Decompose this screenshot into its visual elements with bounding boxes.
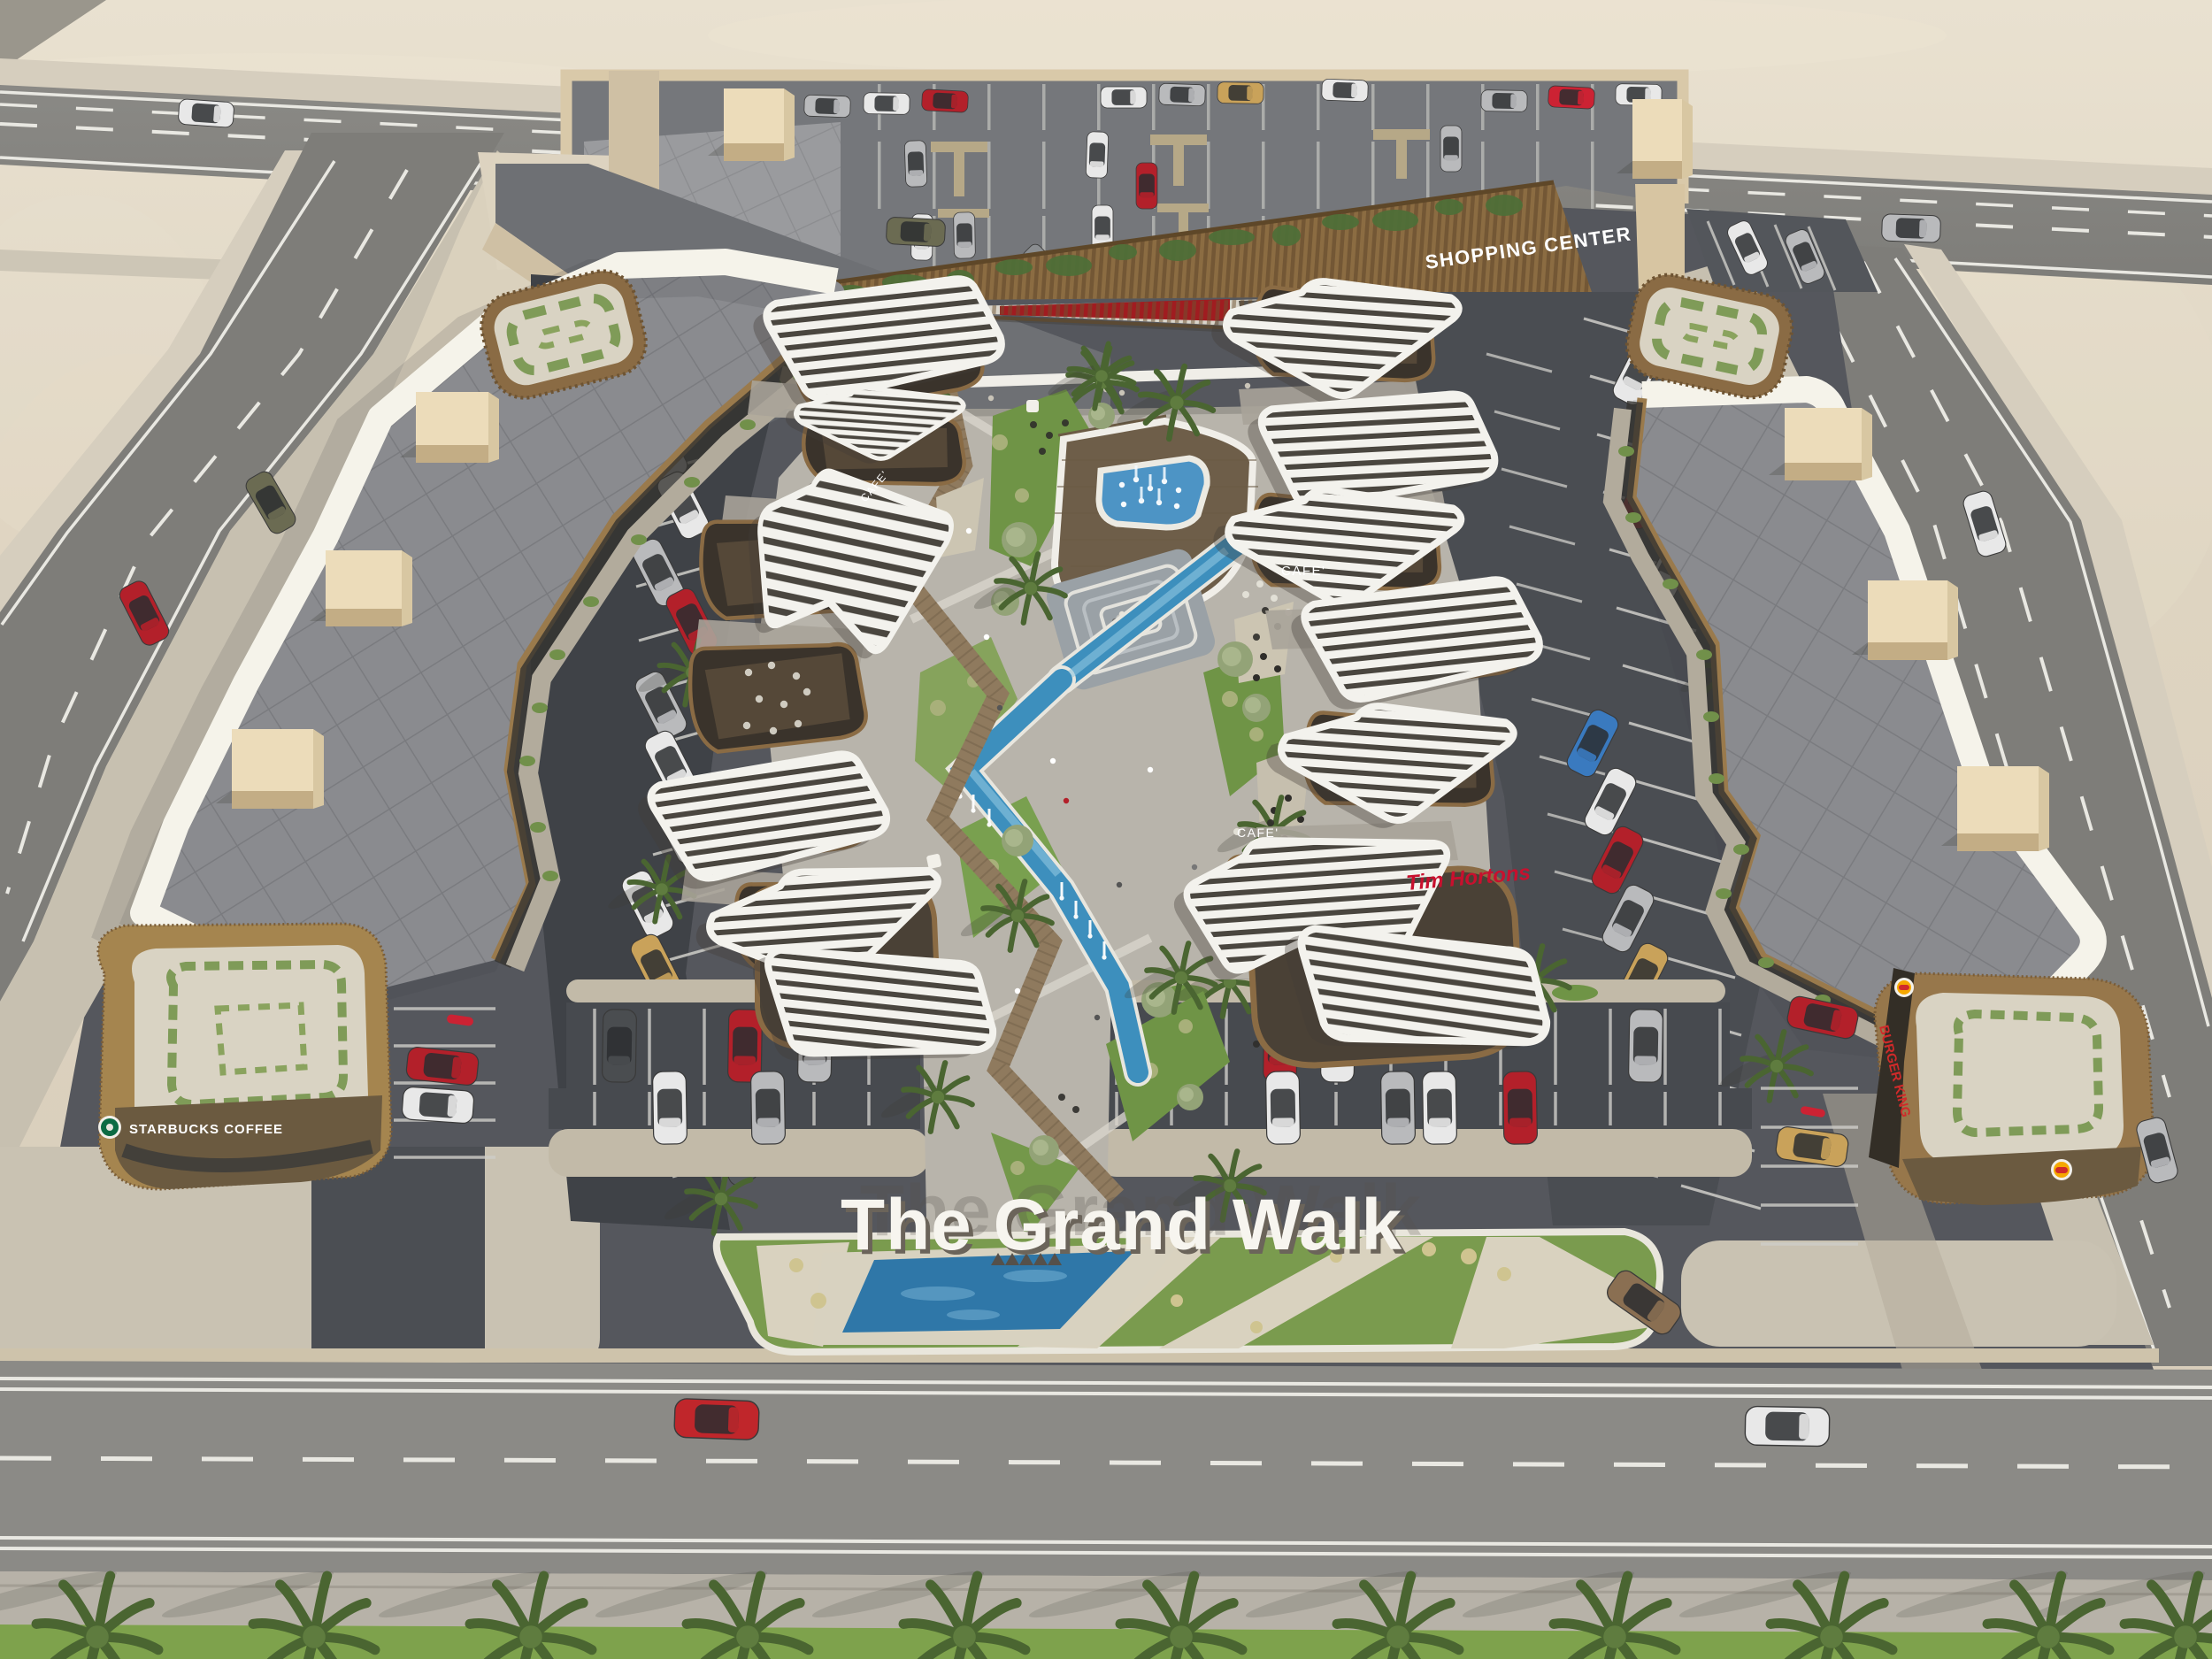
svg-text:CAFE': CAFE' bbox=[1237, 826, 1279, 840]
svg-text:CAFE': CAFE' bbox=[1281, 564, 1325, 579]
svg-text:The Grand Walk: The Grand Walk bbox=[841, 1185, 1402, 1265]
svg-text:STARBUCKS COFFEE: STARBUCKS COFFEE bbox=[129, 1122, 283, 1137]
